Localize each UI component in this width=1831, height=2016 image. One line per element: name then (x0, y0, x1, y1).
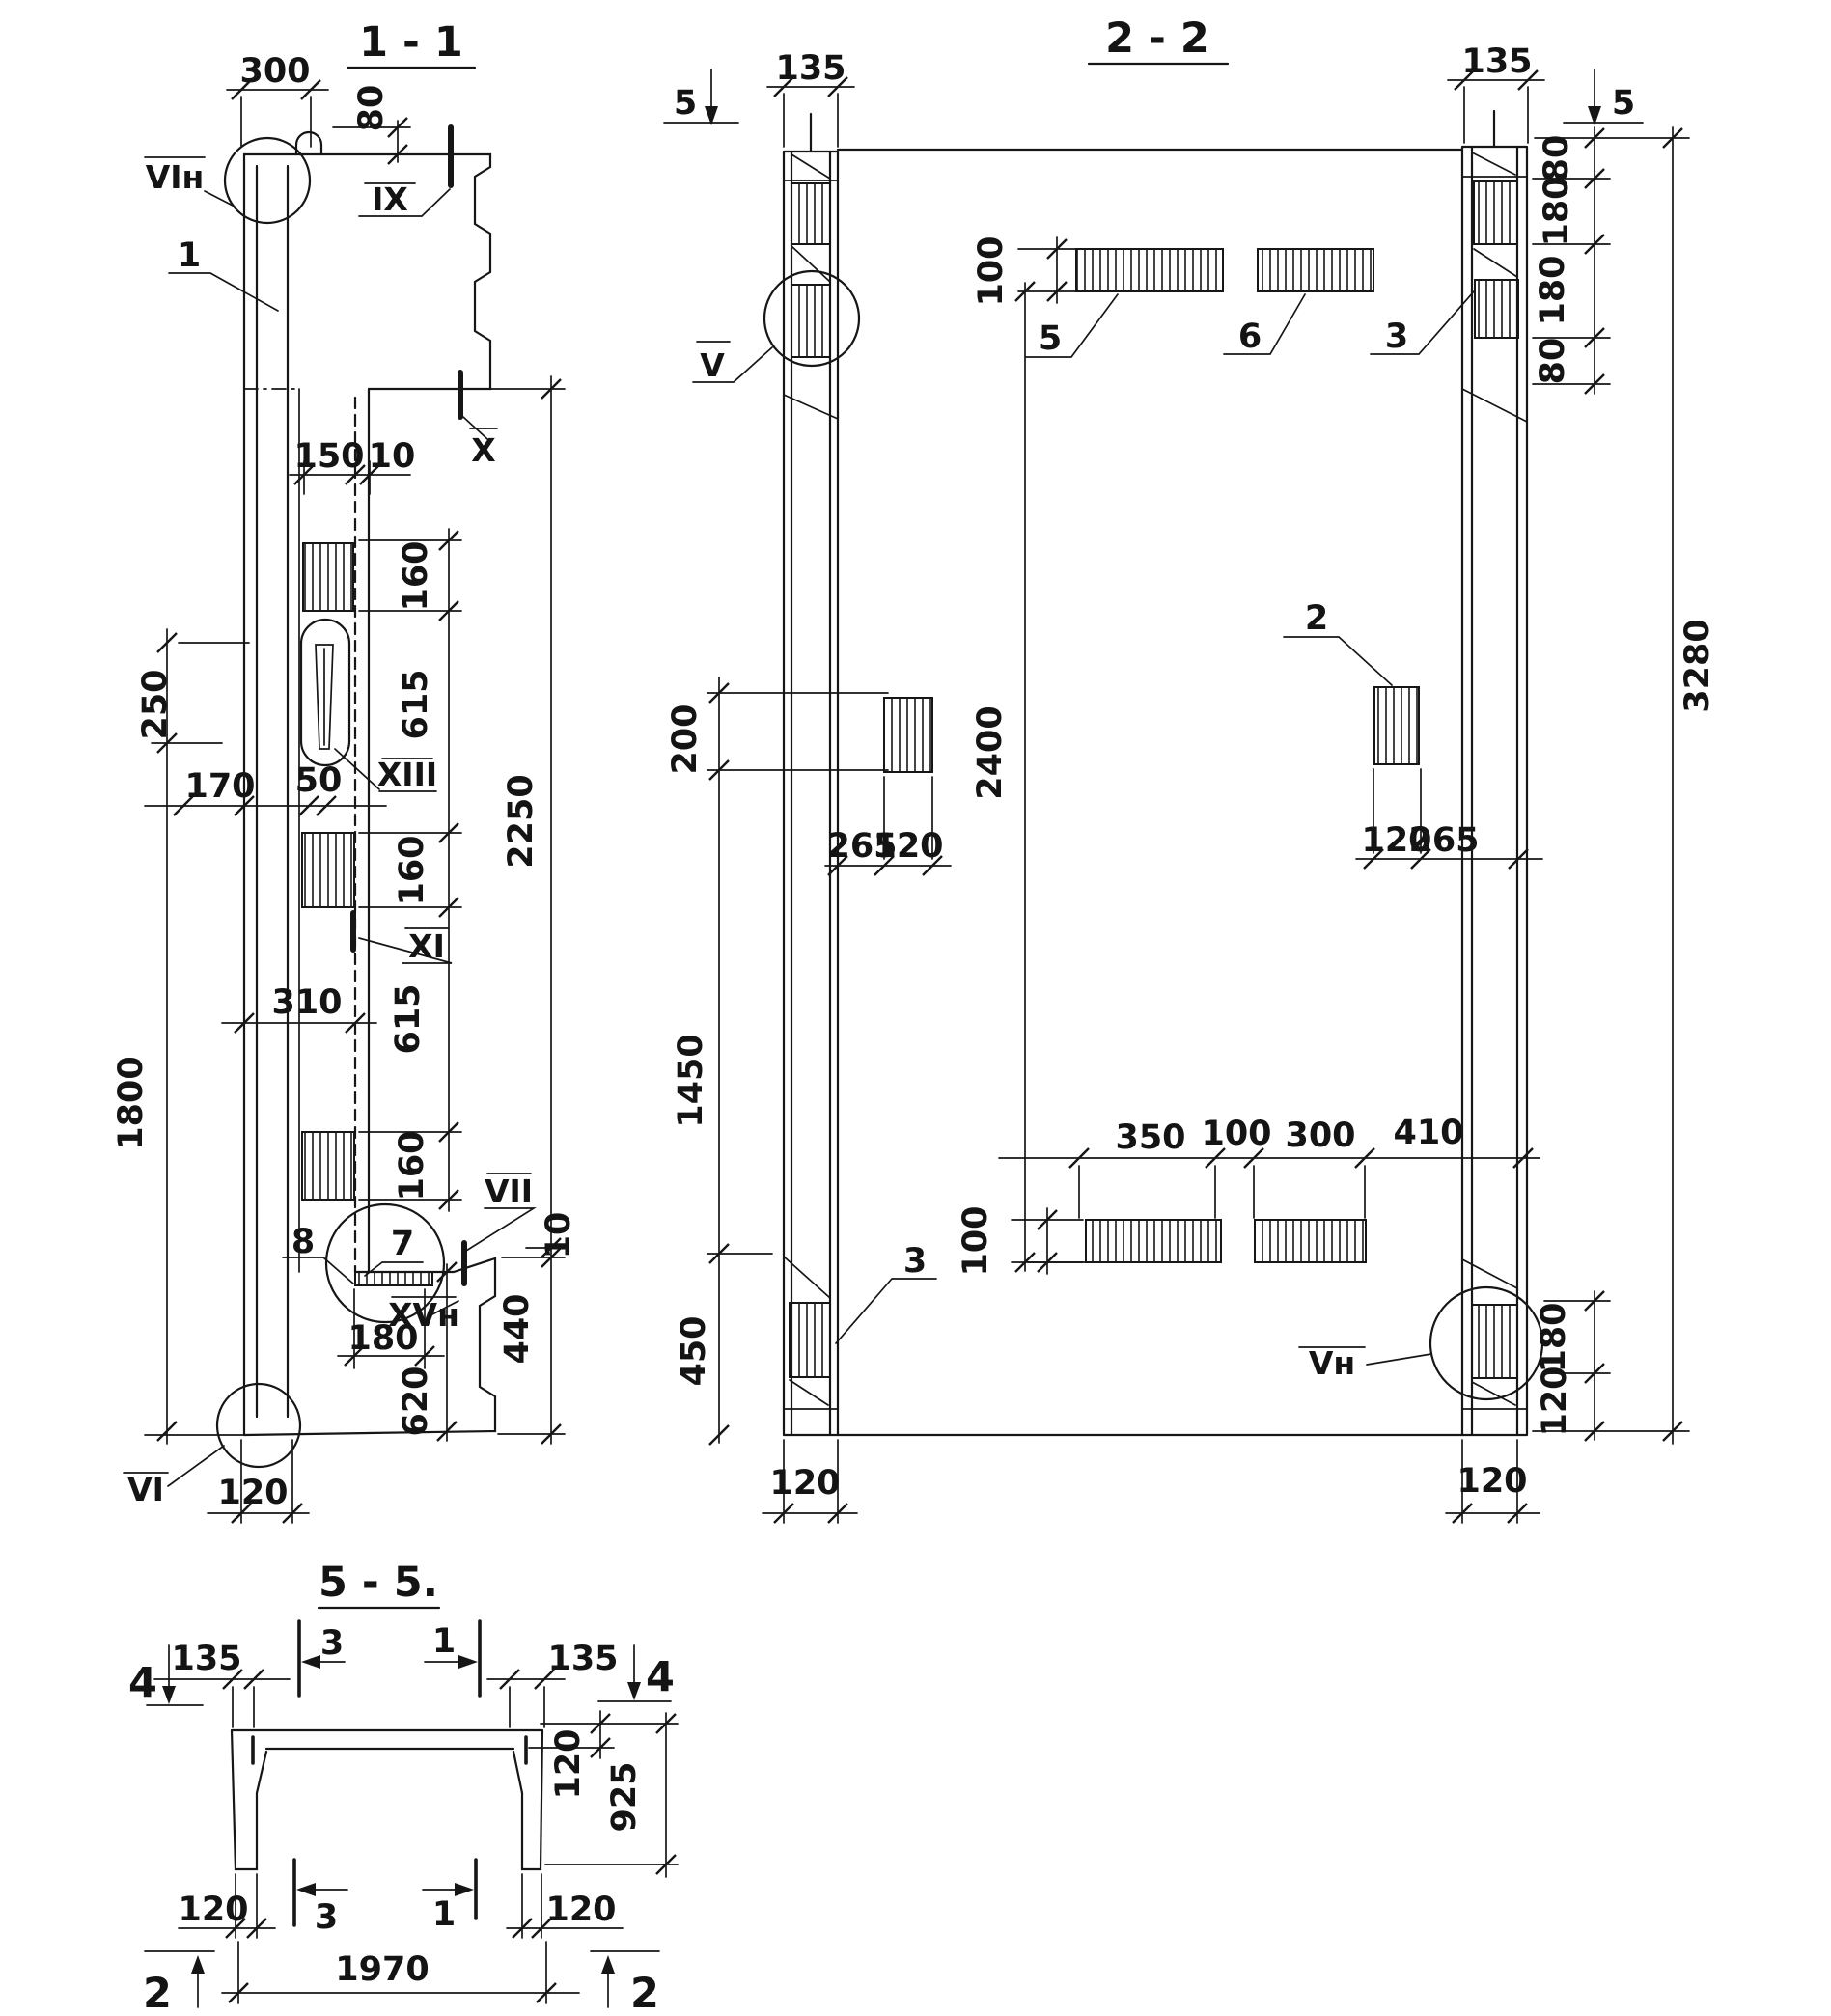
dim-10a: 10 (369, 437, 416, 476)
dim-120-bot-right-55: 120 (545, 1891, 616, 1929)
dim-135-left-55: 135 (171, 1640, 241, 1678)
dim-3280: 3280 (1678, 619, 1717, 712)
dim-150: 150 (293, 437, 364, 476)
dim-300: 300 (1285, 1117, 1355, 1155)
part-1: 1 (178, 236, 201, 275)
dim-615b: 615 (389, 983, 428, 1054)
dim-440: 440 (498, 1293, 537, 1364)
section-5-5-title: 5 - 5. (319, 1559, 438, 1607)
dim-615a: 615 (397, 669, 435, 739)
mark-XIII: XIII (377, 756, 437, 793)
cut-3-top: 3 (320, 1624, 344, 1663)
dim-80b: 80 (1534, 338, 1572, 385)
drawing-canvas: 1 - 1 300 80 1 VIн IX X 150 10 160 615 1… (0, 0, 1831, 2011)
part-5: 5 (1039, 319, 1062, 358)
dim-80: 80 (352, 85, 391, 132)
mark-VI: VI (127, 1471, 164, 1508)
mark-X: X (471, 431, 495, 469)
dim-160b: 160 (393, 835, 431, 905)
mark-VII: VII (485, 1173, 533, 1210)
dim-250: 250 (136, 669, 175, 739)
cut-1-top: 1 (432, 1622, 456, 1661)
dim-1450: 1450 (672, 1034, 710, 1127)
dim-2400: 2400 (971, 705, 1010, 799)
dim-120-under-right: 120 (1456, 1462, 1527, 1501)
dim-160a: 160 (397, 540, 435, 611)
dim-80a: 80 (1538, 135, 1576, 182)
cut-2-left: 2 (143, 1970, 172, 2011)
section-1-1: 1 - 1 300 80 1 VIн IX X 150 10 160 615 1… (112, 18, 578, 1523)
section-2-2-title: 2 - 2 (1105, 14, 1209, 63)
dim-120-bot-chain: 120 (1536, 1366, 1574, 1436)
dim-1800: 1800 (112, 1056, 151, 1149)
mark-IX: IX (372, 180, 408, 218)
part-2: 2 (1305, 599, 1328, 638)
section-2-2: 2 - 2 5 5 135 135 80 180 180 80 3280 V 1… (664, 14, 1717, 1523)
dim-120-bot-left-55: 120 (178, 1891, 248, 1929)
part-7: 7 (391, 1225, 414, 1263)
dim-100-top: 100 (972, 235, 1011, 306)
dim-180: 180 (347, 1319, 418, 1358)
part-3-top: 3 (1385, 318, 1408, 356)
dim-135-left: 135 (775, 49, 846, 88)
cut-3-bottom: 3 (315, 1898, 338, 1937)
section-1-1-title: 1 - 1 (359, 18, 463, 67)
dim-100-mid: 100 (1201, 1115, 1271, 1153)
dim-120-flange: 120 (549, 1728, 588, 1799)
mark-V: V (700, 346, 725, 384)
cut-5-right: 5 (1612, 84, 1635, 123)
part-8: 8 (291, 1223, 315, 1261)
cut-2-right: 2 (630, 1970, 659, 2011)
cut-4-right: 4 (646, 1653, 675, 1701)
cut-1-bottom: 1 (432, 1895, 456, 1934)
dim-120: 120 (217, 1474, 288, 1512)
dim-10b: 10 (540, 1212, 578, 1259)
cut-5-left: 5 (674, 84, 697, 123)
dim-265-right: 265 (1408, 821, 1479, 860)
dim-450: 450 (675, 1315, 713, 1386)
dim-120-left: 120 (873, 827, 943, 866)
dim-50: 50 (295, 761, 343, 800)
dim-120-under-left: 120 (769, 1464, 840, 1503)
dim-300: 300 (239, 52, 310, 91)
dim-925: 925 (605, 1761, 644, 1832)
dim-410: 410 (1393, 1114, 1463, 1152)
dim-135-right: 135 (1461, 42, 1532, 81)
dim-180-bot: 180 (1535, 1302, 1573, 1372)
cut-4-left: 4 (128, 1659, 157, 1707)
dim-200: 200 (666, 704, 705, 774)
dim-100-low: 100 (957, 1205, 995, 1276)
mark-XI: XI (408, 927, 445, 965)
dim-310: 310 (271, 983, 342, 1022)
mark-Vn: Vн (1309, 1344, 1355, 1382)
dim-620: 620 (397, 1366, 435, 1436)
dim-180a: 180 (1538, 176, 1576, 246)
dim-170: 170 (184, 767, 255, 806)
dim-135-right-55: 135 (547, 1640, 618, 1678)
dim-160c: 160 (393, 1130, 431, 1201)
mark-VIn: VIн (146, 158, 205, 196)
part-3-bottom: 3 (903, 1242, 927, 1281)
dim-180b: 180 (1534, 255, 1572, 325)
dim-2250: 2250 (502, 774, 541, 868)
section-5-5: 5 - 5. 4 135 3 1 135 4 120 925 120 3 1 1… (128, 1559, 678, 2011)
part-6: 6 (1238, 318, 1262, 356)
dim-1970: 1970 (335, 1950, 429, 1989)
dim-350: 350 (1115, 1118, 1185, 1157)
drawing-sheet: 1 - 1 300 80 1 VIн IX X 150 10 160 615 1… (0, 0, 1831, 2011)
